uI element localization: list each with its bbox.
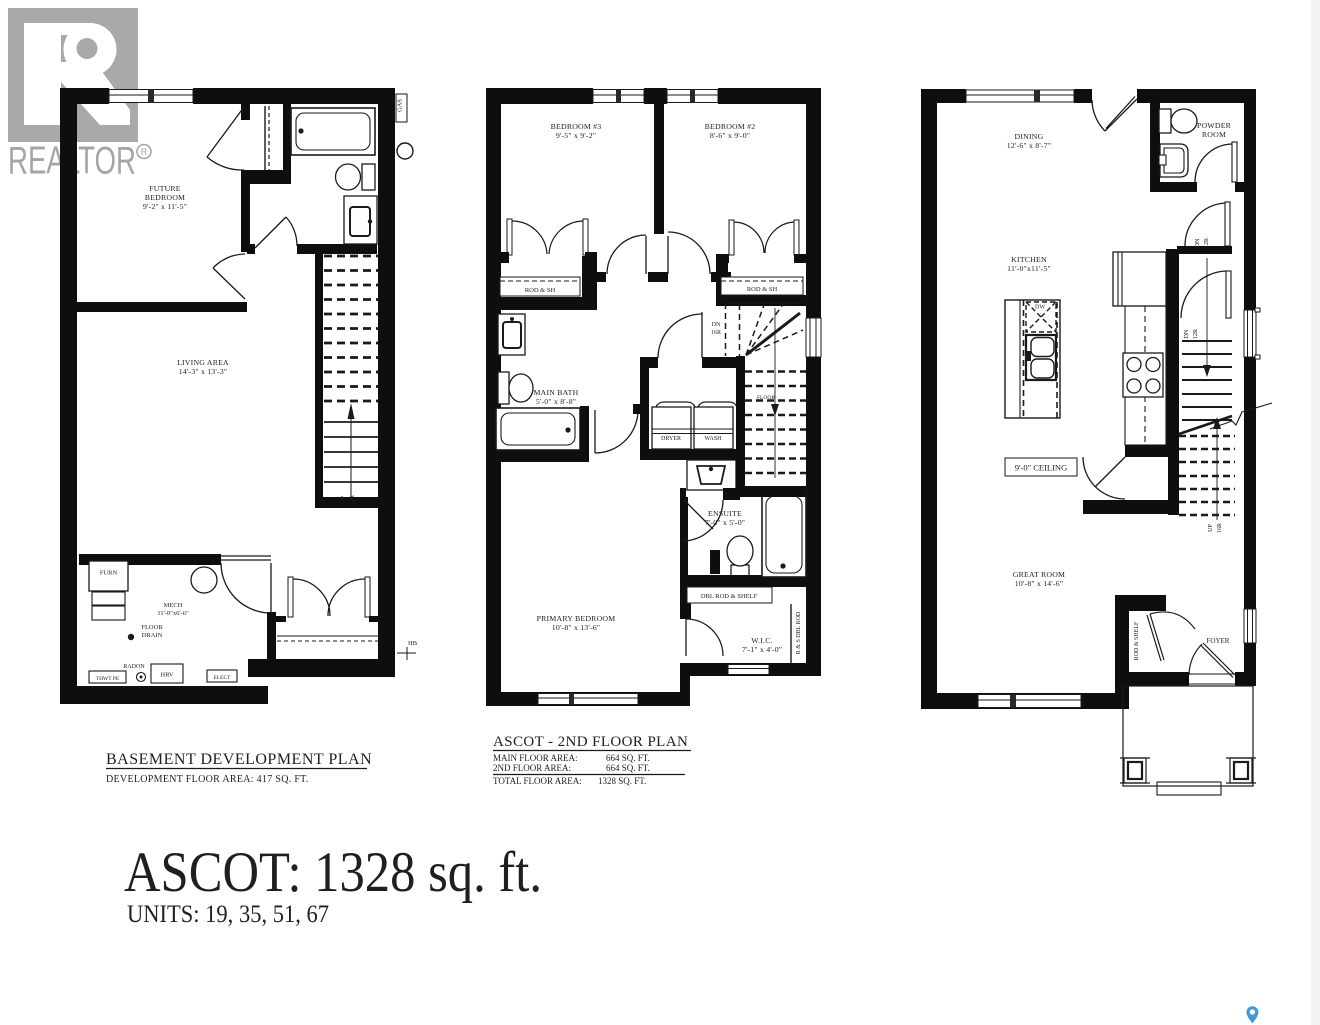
svg-text:2ND FLOOR AREA:: 2ND FLOOR AREA: bbox=[493, 763, 571, 773]
svg-text:R & S DBL ROD: R & S DBL ROD bbox=[796, 611, 802, 654]
svg-text:FUTURE: FUTURE bbox=[149, 184, 181, 193]
svg-text:7'-1" x 4'-0": 7'-1" x 4'-0" bbox=[742, 645, 782, 654]
svg-text:8'-6" x 9'-0": 8'-6" x 9'-0" bbox=[710, 131, 750, 140]
svg-text:12R: 12R bbox=[1204, 238, 1210, 248]
svg-text:ASCOT - 2ND FLOOR PLAN: ASCOT - 2ND FLOOR PLAN bbox=[493, 734, 688, 750]
svg-text:ASCOT: 1328 sq. ft.: ASCOT: 1328 sq. ft. bbox=[124, 841, 542, 904]
svg-text:GREAT ROOM: GREAT ROOM bbox=[1013, 570, 1065, 579]
svg-text:W.I.C.: W.I.C. bbox=[751, 636, 773, 645]
svg-text:ROD & SH: ROD & SH bbox=[747, 286, 778, 293]
svg-text:11'-0"x6'-6": 11'-0"x6'-6" bbox=[157, 610, 189, 617]
svg-text:HB: HB bbox=[408, 640, 418, 647]
svg-text:12'-6" x 8'-7": 12'-6" x 8'-7" bbox=[1007, 141, 1051, 150]
svg-text:THWT PE: THWT PE bbox=[96, 676, 120, 682]
svg-text:12R: 12R bbox=[1193, 329, 1199, 339]
svg-text:7'-0" x 5'-0": 7'-0" x 5'-0" bbox=[705, 518, 745, 527]
svg-text:1328 SQ. FT.: 1328 SQ. FT. bbox=[598, 776, 646, 786]
svg-text:KITCHEN: KITCHEN bbox=[1011, 255, 1047, 264]
svg-text:ROD & SH: ROD & SH bbox=[525, 287, 556, 294]
svg-text:WASH: WASH bbox=[704, 436, 722, 442]
svg-text:HRV: HRV bbox=[160, 672, 174, 679]
svg-text:12R: 12R bbox=[350, 495, 356, 505]
svg-text:DRAIN: DRAIN bbox=[142, 632, 163, 639]
svg-text:664 SQ. FT.: 664 SQ. FT. bbox=[606, 763, 650, 773]
svg-text:TOTAL FLOOR AREA:: TOTAL FLOOR AREA: bbox=[493, 776, 582, 786]
svg-text:ROOM: ROOM bbox=[1202, 130, 1226, 139]
svg-text:PRIMARY BEDROOM: PRIMARY BEDROOM bbox=[537, 614, 616, 623]
svg-text:FOYER: FOYER bbox=[1207, 637, 1230, 645]
svg-text:DBL ROD & SHELF: DBL ROD & SHELF bbox=[701, 593, 758, 600]
svg-text:664 SQ. FT.: 664 SQ. FT. bbox=[606, 753, 650, 763]
svg-text:5'-0" x 8'-8": 5'-0" x 8'-8" bbox=[536, 397, 576, 406]
svg-text:UP: UP bbox=[1208, 524, 1214, 532]
svg-text:9'-5" x 9'-2": 9'-5" x 9'-2" bbox=[556, 131, 596, 140]
svg-text:MAIN BATH: MAIN BATH bbox=[534, 388, 579, 397]
svg-text:GAS: GAS bbox=[397, 99, 404, 112]
svg-text:DN: DN bbox=[1195, 238, 1201, 247]
svg-text:BEDROOM #3: BEDROOM #3 bbox=[551, 122, 602, 131]
svg-text:UP: UP bbox=[341, 496, 347, 504]
svg-text:ELECT: ELECT bbox=[213, 675, 231, 681]
svg-text:DINING: DINING bbox=[1015, 132, 1044, 141]
svg-text:MECH: MECH bbox=[164, 602, 183, 609]
svg-text:10'-8" x 13'-6": 10'-8" x 13'-6" bbox=[552, 623, 601, 632]
svg-text:14'-3" x 13'-3": 14'-3" x 13'-3" bbox=[179, 367, 228, 376]
svg-text:RADON: RADON bbox=[123, 664, 145, 670]
svg-text:FURN: FURN bbox=[100, 570, 118, 577]
svg-text:BASEMENT DEVELOPMENT PLAN: BASEMENT DEVELOPMENT PLAN bbox=[106, 751, 372, 768]
svg-text:BEDROOM: BEDROOM bbox=[145, 193, 185, 202]
svg-text:9'-0" CEILING: 9'-0" CEILING bbox=[1015, 463, 1067, 473]
svg-text:16R: 16R bbox=[711, 330, 721, 336]
svg-text:DW: DW bbox=[1035, 305, 1045, 311]
svg-text:16R: 16R bbox=[1217, 523, 1223, 533]
svg-text:UNITS: 19, 35, 51, 67: UNITS: 19, 35, 51, 67 bbox=[127, 901, 329, 928]
svg-text:POWDER: POWDER bbox=[1197, 121, 1232, 130]
svg-text:11'-0"x11'-5": 11'-0"x11'-5" bbox=[1007, 264, 1051, 273]
svg-text:DRYER: DRYER bbox=[661, 436, 681, 442]
svg-text:R: R bbox=[141, 147, 148, 157]
svg-text:10'-8" x 14'-6": 10'-8" x 14'-6" bbox=[1015, 579, 1064, 588]
svg-text:FLOOR: FLOOR bbox=[757, 395, 775, 401]
svg-text:DN: DN bbox=[712, 322, 721, 328]
svg-text:BEDROOM #2: BEDROOM #2 bbox=[705, 122, 756, 131]
svg-text:9'-2" x 11'-5": 9'-2" x 11'-5" bbox=[143, 202, 187, 211]
svg-text:ENSUITE: ENSUITE bbox=[708, 509, 742, 518]
svg-text:LIVING AREA: LIVING AREA bbox=[177, 358, 229, 367]
svg-text:ROD & SHELF: ROD & SHELF bbox=[1134, 621, 1140, 660]
svg-text:MAIN FLOOR AREA:: MAIN FLOOR AREA: bbox=[493, 753, 578, 763]
svg-text:FLOOR: FLOOR bbox=[141, 624, 163, 631]
svg-text:DN: DN bbox=[1184, 329, 1190, 338]
svg-text:DEVELOPMENT FLOOR AREA: 417 SQ: DEVELOPMENT FLOOR AREA: 417 SQ. FT. bbox=[106, 774, 309, 785]
